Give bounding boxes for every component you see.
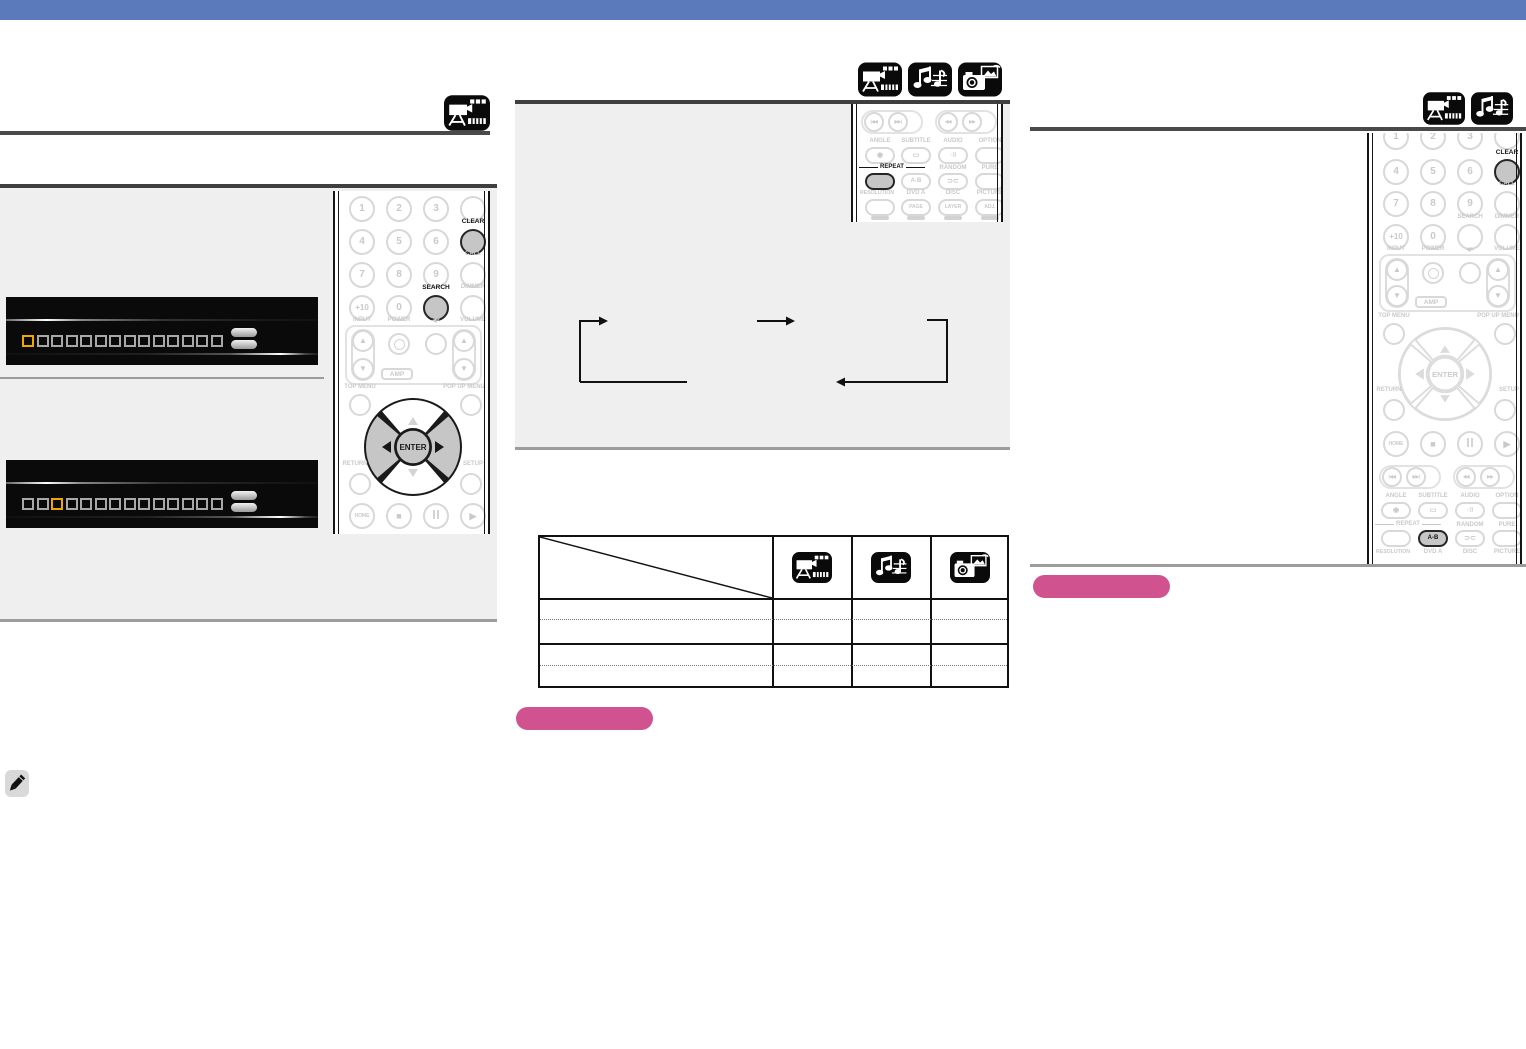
audio-cd-icon <box>908 62 952 97</box>
audio-cd-icon <box>871 552 911 583</box>
return-label: RETURN <box>1369 387 1409 393</box>
display-cell <box>124 335 136 347</box>
clear-label: CLEAR <box>1487 149 1522 156</box>
front-panel-button <box>231 328 257 337</box>
repeat-label: REPEAT <box>1394 521 1422 527</box>
right-section-bottom-line <box>1030 564 1526 567</box>
top-menu-label: TOP MENU <box>337 384 383 390</box>
ab-repeat-button: A-B <box>901 173 931 190</box>
pause-icon <box>1467 438 1473 447</box>
power-button <box>1422 262 1444 284</box>
adj-button: ADJ. <box>975 199 1003 216</box>
mute-button <box>1459 262 1481 284</box>
display-cells-2 <box>22 498 223 510</box>
display-cell <box>66 498 78 510</box>
pure-button <box>975 173 1003 190</box>
angle-button: ◉ <box>1381 502 1411 519</box>
home-button: HOME <box>349 503 375 529</box>
page-link-button[interactable] <box>1033 575 1170 598</box>
picture-label: PICTURE <box>970 190 1003 196</box>
skip-forward-button: ▶▶| <box>1406 467 1426 487</box>
input-down-button: ▼ <box>352 358 374 380</box>
panel-divider <box>0 377 324 379</box>
popup-menu-label: POP UP MENU <box>1472 313 1522 319</box>
cursor-pad: ENTER <box>1397 326 1493 422</box>
table-column-line <box>772 537 774 686</box>
power-label: POWER <box>1413 246 1453 252</box>
digit-8-button: 8 <box>1420 191 1446 217</box>
angle-label: ANGLE <box>1376 493 1416 499</box>
digit-5-button: 5 <box>1420 159 1446 185</box>
display-cell <box>211 335 223 347</box>
left-illustration-box: 1 2 3 CLEAR 4 5 6 CALL 7 8 9 SEARCH DIMM… <box>0 184 497 622</box>
pure-label: PURE <box>970 165 1003 171</box>
input-down-button: ▼ <box>1386 285 1408 307</box>
stop-button: ■ <box>386 503 412 529</box>
dvd-a-label: DVD A <box>896 190 936 196</box>
front-panel-button <box>231 340 257 349</box>
top-menu-label: TOP MENU <box>1371 313 1417 319</box>
middle-illustration-box: |◀◀ ▶▶| ◀◀ ▶▶ ANGLE SUBTITLE AUDIO OPTIO… <box>515 100 1010 450</box>
picture-icon <box>950 552 990 583</box>
display-cell-highlighted <box>22 335 34 347</box>
media-compatibility-table <box>538 535 1009 688</box>
volume-down-button: ▼ <box>1487 285 1509 307</box>
call-label: CALL <box>1487 181 1522 187</box>
digit-1-button: 1 <box>349 196 375 222</box>
power-icon <box>394 339 405 350</box>
blank-button <box>1494 133 1520 150</box>
page-button: PAGE <box>901 199 931 216</box>
display-cell <box>138 335 150 347</box>
right-section-rule <box>1030 127 1526 131</box>
option-button <box>975 147 1003 164</box>
display-cell <box>196 335 208 347</box>
enter-label: ENTER <box>1432 370 1458 379</box>
digit-1-button: 1 <box>1383 133 1409 150</box>
page-header-bar <box>0 0 1526 20</box>
setup-label: SETUP <box>453 461 490 467</box>
amp-badge: AMP <box>1415 296 1447 308</box>
cropped-button <box>871 216 889 220</box>
input-label: INPUT <box>342 317 382 323</box>
skip-back-button: |◀◀ <box>864 112 884 132</box>
table-column-line <box>930 537 932 686</box>
angle-label: ANGLE <box>860 138 900 144</box>
display-cells-1 <box>22 335 223 347</box>
call-label: CALL <box>453 251 490 257</box>
cursor-pad-highlighted: ENTER <box>363 397 463 497</box>
manual-page: 1 2 3 CLEAR 4 5 6 CALL 7 8 9 SEARCH DIMM… <box>0 0 1526 1049</box>
digit-5-button: 5 <box>386 229 412 255</box>
display-cell-highlighted <box>51 498 63 510</box>
audio-button: ○)) <box>938 147 968 164</box>
subtitle-button: ▭ <box>1418 502 1448 519</box>
random-label: RANDOM <box>933 165 973 171</box>
play-button: ▶ <box>460 503 486 529</box>
search-label: SEARCH <box>1450 214 1490 220</box>
resolution-button <box>865 199 895 216</box>
table-dotted-line <box>540 619 1007 620</box>
repeat-button <box>1381 530 1411 547</box>
digit-2-button: 2 <box>1420 133 1446 150</box>
repeat-label: REPEAT <box>878 164 906 170</box>
cropped-button <box>907 216 925 220</box>
dvd-video-icon <box>1423 92 1465 125</box>
play-button: ▶ <box>1494 431 1520 457</box>
table-row-line <box>540 643 1007 645</box>
panel-shine <box>6 482 318 484</box>
display-cell <box>167 498 179 510</box>
digit-6-button: 6 <box>423 229 449 255</box>
display-cell <box>182 498 194 510</box>
power-button <box>388 333 410 355</box>
picture-icon <box>958 62 1002 97</box>
dvd-video-icon <box>858 62 902 97</box>
digit-2-button: 2 <box>386 196 412 222</box>
front-panel-button <box>231 491 257 500</box>
random-label: RANDOM <box>1450 522 1490 528</box>
volume-up-button: ▲ <box>453 330 475 352</box>
pause-button <box>1457 431 1483 457</box>
display-cell <box>80 335 92 347</box>
display-cell <box>196 498 208 510</box>
display-cell <box>153 498 165 510</box>
enter-label: ENTER <box>399 443 426 452</box>
angle-button: ◉ <box>865 147 895 164</box>
ab-repeat-button: A-B <box>1418 530 1448 547</box>
skip-back-button: |◀◀ <box>1382 467 1402 487</box>
power-icon <box>1428 268 1439 279</box>
digit-3-button: 3 <box>423 196 449 222</box>
skip-forward-button: ▶▶| <box>888 112 908 132</box>
subtitle-label: SUBTITLE <box>1413 493 1453 499</box>
setup-button <box>1494 399 1516 421</box>
pure-button <box>1492 530 1522 547</box>
display-cell <box>80 498 92 510</box>
popup-menu-button <box>460 394 482 416</box>
audio-label: AUDIO <box>933 138 973 144</box>
display-cell <box>51 335 63 347</box>
panel-shine <box>6 353 318 355</box>
disc-label: DISC <box>933 190 973 196</box>
repeat-button <box>865 173 895 190</box>
return-button <box>349 473 371 495</box>
display-cell <box>66 335 78 347</box>
note-pencil-icon <box>5 770 29 797</box>
display-cell <box>182 335 194 347</box>
clear-label: CLEAR <box>453 218 490 225</box>
remote-control-middle: |◀◀ ▶▶| ◀◀ ▶▶ ANGLE SUBTITLE AUDIO OPTIO… <box>851 104 1003 222</box>
audio-button: ○)) <box>1455 502 1485 519</box>
display-cell <box>37 498 49 510</box>
popup-menu-label: POP UP MENU <box>438 384 490 390</box>
subtitle-label: SUBTITLE <box>896 138 936 144</box>
cropped-button <box>944 216 962 220</box>
volume-down-button: ▼ <box>453 358 475 380</box>
digit-4-button: 4 <box>349 229 375 255</box>
remote-control-right: 1 2 3 CLEAR 4 5 6 CALL 7 8 9 SEARCH DIMM… <box>1367 133 1522 565</box>
display-cell <box>138 498 150 510</box>
setup-button <box>460 473 482 495</box>
digit-6-button: 6 <box>1457 159 1483 185</box>
digit-4-button: 4 <box>1383 159 1409 185</box>
display-cell <box>211 498 223 510</box>
dvd-video-icon <box>444 95 490 131</box>
display-cell <box>22 498 34 510</box>
picture-label: PICTURE <box>1487 549 1522 555</box>
display-cell <box>109 498 121 510</box>
mute-icon: ◀× <box>416 317 456 324</box>
disc-label: DISC <box>1450 549 1490 555</box>
popup-menu-button <box>1494 323 1516 345</box>
pure-label: PURE <box>1487 522 1522 528</box>
return-label: RETURN <box>335 461 375 467</box>
display-cell <box>37 335 49 347</box>
display-cell <box>124 498 136 510</box>
fast-forward-button: ▶▶ <box>1480 467 1500 487</box>
table-row-line <box>540 598 1007 600</box>
front-panel-display-2 <box>6 460 318 528</box>
option-button <box>1492 502 1522 519</box>
input-up-button: ▲ <box>352 330 374 352</box>
audio-label: AUDIO <box>1450 493 1490 499</box>
display-cell <box>95 498 107 510</box>
subtitle-button: ▭ <box>901 147 931 164</box>
input-label: INPUT <box>1376 246 1416 252</box>
display-cell <box>167 335 179 347</box>
return-button <box>1383 399 1405 421</box>
pause-icon <box>433 510 439 519</box>
display-cell <box>95 335 107 347</box>
dimmer-label: DIMMER <box>453 284 490 290</box>
repeat-bracket-label: REPEAT <box>1375 521 1441 527</box>
left-section-rule <box>0 131 490 135</box>
table-diagonal <box>540 537 772 598</box>
volume-up-button: ▲ <box>1487 259 1509 281</box>
pause-button <box>423 503 449 529</box>
dimmer-label: DIMMER <box>1487 214 1522 220</box>
remote-control-left: 1 2 3 CLEAR 4 5 6 CALL 7 8 9 SEARCH DIMM… <box>333 191 490 534</box>
dvd-a-label: DVD A <box>1413 549 1453 555</box>
panel-shine <box>6 516 318 518</box>
layer-button: LAYER <box>938 199 968 216</box>
stop-button: ■ <box>1420 431 1446 457</box>
digit-8-button: 8 <box>386 262 412 288</box>
rewind-button: ◀◀ <box>1456 467 1476 487</box>
panel-shine <box>6 319 318 321</box>
option-label: OPTION <box>970 138 1003 144</box>
volume-label: VOLUME <box>1487 246 1522 252</box>
display-cell <box>153 335 165 347</box>
front-panel-display-1 <box>6 297 318 365</box>
volume-label: VOLUME <box>453 317 490 323</box>
audio-cd-icon <box>1471 92 1513 125</box>
fast-forward-button: ▶▶ <box>962 112 982 132</box>
table-column-line <box>851 537 853 686</box>
power-label: POWER <box>379 317 419 323</box>
mute-button <box>425 333 447 355</box>
setup-label: SETUP <box>1489 387 1522 393</box>
random-button: ⊃⊂ <box>938 173 968 190</box>
table-dotted-line <box>540 665 1007 666</box>
home-button: HOME <box>1383 431 1409 457</box>
mute-icon: ◀× <box>1450 246 1490 253</box>
dvd-video-icon <box>792 552 832 583</box>
search-label: SEARCH <box>416 284 456 291</box>
input-up-button: ▲ <box>1386 259 1408 281</box>
repeat-bracket-label: REPEAT <box>859 164 925 170</box>
digit-7-button: 7 <box>349 262 375 288</box>
page-link-button[interactable] <box>516 707 653 730</box>
random-button: ⊃⊂ <box>1455 530 1485 547</box>
digit-3-button: 3 <box>1457 133 1483 150</box>
digit-7-button: 7 <box>1383 191 1409 217</box>
rewind-button: ◀◀ <box>938 112 958 132</box>
display-cell <box>109 335 121 347</box>
amp-badge: AMP <box>381 368 413 380</box>
option-label: OPTION <box>1487 493 1522 499</box>
cropped-button <box>981 216 999 220</box>
front-panel-button <box>231 503 257 512</box>
